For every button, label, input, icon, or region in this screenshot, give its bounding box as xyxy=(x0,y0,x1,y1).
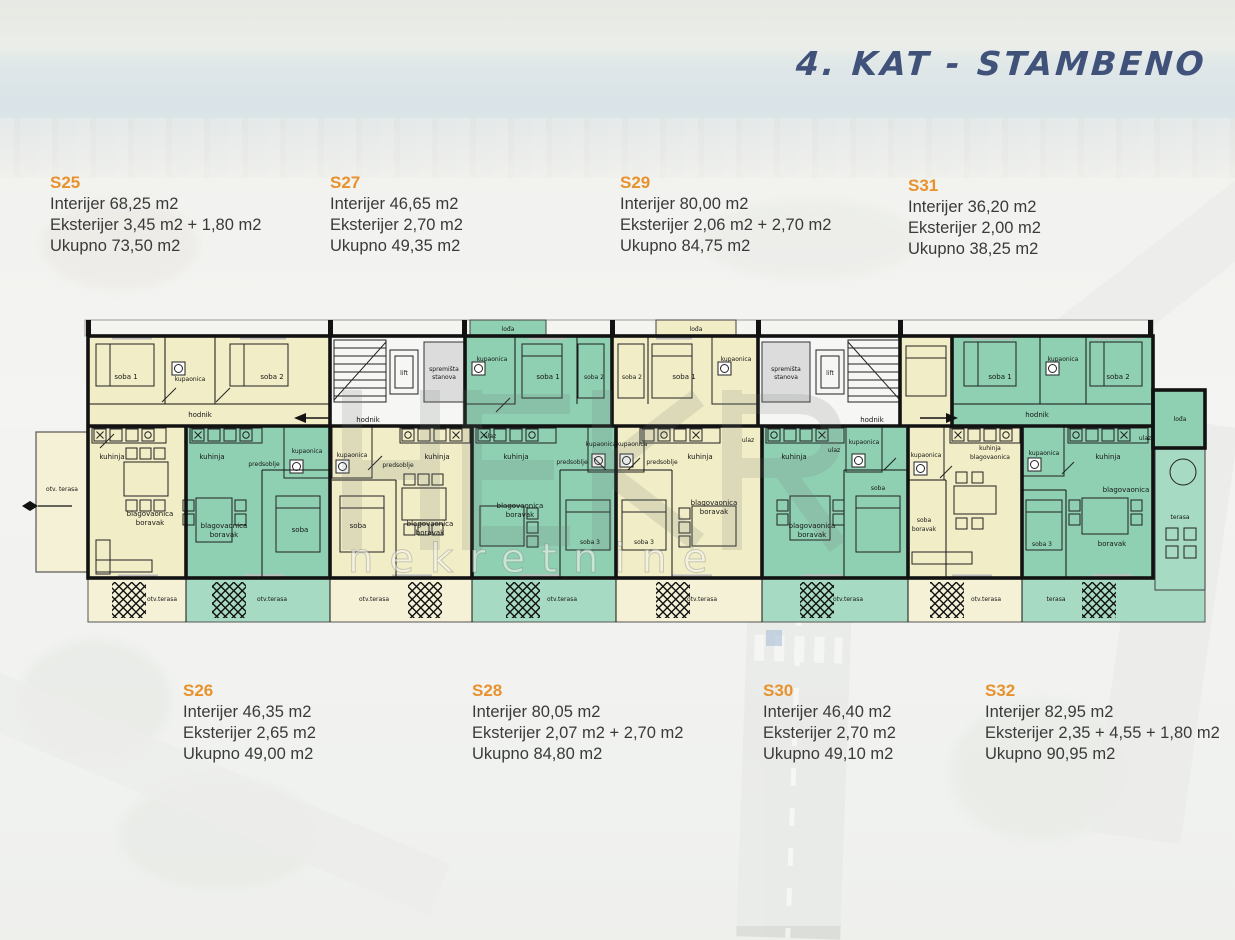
room-label: boravak xyxy=(416,529,445,537)
room-label: blagovaonica xyxy=(407,520,454,528)
room-label: kupaonica xyxy=(721,356,752,363)
room-label: soba 1 xyxy=(672,373,695,381)
room-label: kupaonica xyxy=(337,452,368,459)
room-label: lođa xyxy=(502,326,515,333)
room-label: boravak xyxy=(912,526,937,533)
room-label: terasa xyxy=(1047,596,1066,603)
room-label: hodnik xyxy=(1025,411,1050,419)
room-label: lift xyxy=(826,370,834,377)
room-label: soba 3 xyxy=(634,539,654,546)
room-label: otv.terasa xyxy=(687,596,717,603)
watermark-text: nekretnine xyxy=(348,536,723,582)
room-label: kuhinja xyxy=(503,453,528,461)
room-label: kuhinja xyxy=(781,453,806,461)
room-label: spremišta xyxy=(771,366,801,373)
room-label: boravak xyxy=(798,531,827,539)
room-label: soba xyxy=(350,522,367,530)
room-label: stanova xyxy=(432,374,456,381)
room-label: blagovaonica xyxy=(127,510,174,518)
room-label: kuhinja xyxy=(1095,453,1120,461)
room-label: terasa xyxy=(1171,514,1190,521)
room-label: boravak xyxy=(136,519,165,527)
room-label: soba 1 xyxy=(114,373,137,381)
room-label: spremišta xyxy=(429,366,459,373)
room-label: soba xyxy=(917,517,932,524)
floor-plan-svg: nekretnine soba 1 kupaonica soba 2 lođa … xyxy=(0,0,1235,926)
room-label: blagovaonica xyxy=(789,522,836,530)
room-label: kupaonica xyxy=(586,441,617,448)
room-label: predsoblje xyxy=(248,461,280,468)
room-label: otv. terasa xyxy=(46,486,78,493)
room-label: kupaonica xyxy=(911,452,942,459)
room-label: kupaonica xyxy=(477,356,508,363)
room-label: kupaonica xyxy=(849,439,880,446)
room-label: otv.terasa xyxy=(971,596,1001,603)
room-label: hodnik xyxy=(356,416,381,424)
room-label: ulaz xyxy=(742,437,754,444)
room-label: kuhinja xyxy=(424,453,449,461)
room-label: otv.terasa xyxy=(833,596,863,603)
room-label: soba 1 xyxy=(536,373,559,381)
room-label: boravak xyxy=(210,531,239,539)
room-label: kuhinja xyxy=(979,445,1001,452)
room-label: soba 3 xyxy=(580,539,600,546)
room-label: kupaonica xyxy=(1029,450,1060,457)
room-label: predsoblje xyxy=(556,459,588,466)
room-label: kuhinja xyxy=(199,453,224,461)
room-label: blagovaonica xyxy=(1103,486,1150,494)
room-label: kupaonica xyxy=(292,448,323,455)
room-label: kupaonica xyxy=(175,376,206,383)
room-label: blagovaonica xyxy=(201,522,248,530)
room-label: soba 2 xyxy=(584,374,604,381)
room-label: otv.terasa xyxy=(547,596,577,603)
room-label: soba 2 xyxy=(622,374,642,381)
room-label: hodnik xyxy=(188,411,213,419)
room-label: blagovaonica xyxy=(691,499,738,507)
room-label: kupaonica xyxy=(1048,356,1079,363)
room-label: boravak xyxy=(700,508,729,516)
room-label: predsoblje xyxy=(382,462,414,469)
room-label: kupaonica xyxy=(617,441,648,448)
room-label: otv.terasa xyxy=(359,596,389,603)
room-label: predsoblje xyxy=(646,459,678,466)
room-label: soba 2 xyxy=(1106,373,1129,381)
room-label: kuhinja xyxy=(687,453,712,461)
room-label: blagovaonica xyxy=(970,454,1010,461)
room-label: soba xyxy=(292,526,309,534)
room-label: otv.terasa xyxy=(147,596,177,603)
room-label: boravak xyxy=(506,511,535,519)
room-label: kuhinja xyxy=(99,453,124,461)
room-label: lođa xyxy=(1174,416,1187,423)
room-label: ulaz xyxy=(484,433,496,440)
room-label: soba xyxy=(871,485,886,492)
room-label: ulaz xyxy=(1139,435,1151,442)
room-label: soba 1 xyxy=(988,373,1011,381)
room-label: ulaz xyxy=(828,447,840,454)
room-label: lift xyxy=(400,370,408,377)
room-label: otv.terasa xyxy=(257,596,287,603)
room-label: hodnik xyxy=(860,416,885,424)
room-label: soba 2 xyxy=(260,373,283,381)
room-label: soba 3 xyxy=(1032,541,1052,548)
room-label: boravak xyxy=(1098,540,1127,548)
room-label: stanova xyxy=(774,374,798,381)
room-label: lođa xyxy=(690,326,703,333)
room-label: blagovaonica xyxy=(497,502,544,510)
